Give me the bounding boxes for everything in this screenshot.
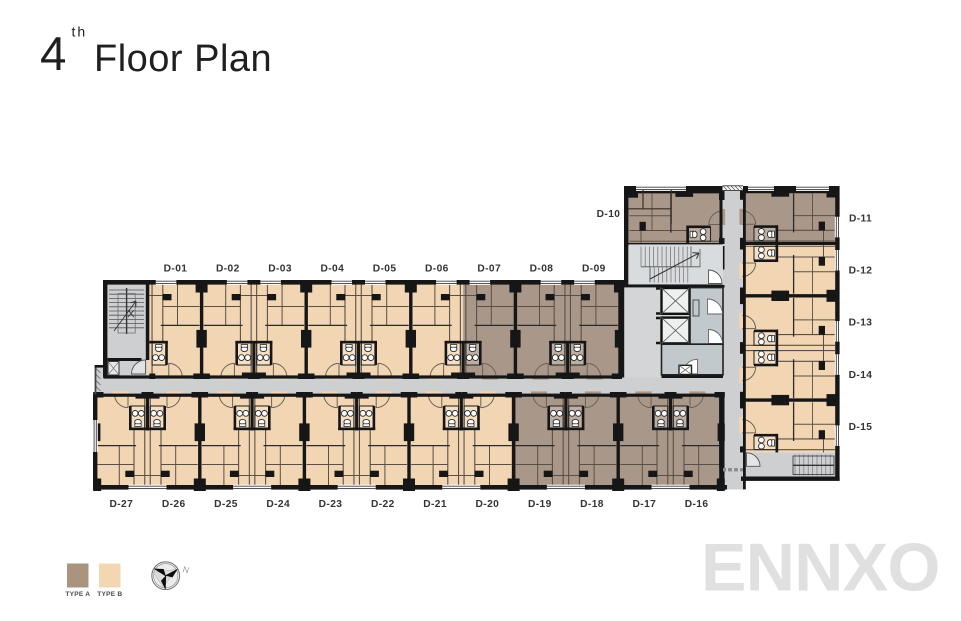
svg-text:D-10: D-10 [597,209,621,220]
svg-text:D-12: D-12 [849,266,873,277]
svg-text:Floor Plan: Floor Plan [94,38,272,80]
svg-text:TYPE B: TYPE B [97,591,122,598]
svg-text:TYPE A: TYPE A [65,591,90,598]
svg-text:4: 4 [40,28,66,81]
svg-text:D-08: D-08 [530,264,554,275]
svg-text:D-21: D-21 [423,499,447,510]
svg-text:D-03: D-03 [268,264,292,275]
svg-text:D-04: D-04 [320,264,344,275]
svg-text:ENNXO: ENNXO [701,530,940,606]
svg-text:D-01: D-01 [164,264,188,275]
svg-text:D-20: D-20 [476,499,500,510]
svg-text:D-22: D-22 [371,499,395,510]
svg-text:D-24: D-24 [266,499,290,510]
svg-text:D-11: D-11 [849,214,872,225]
svg-text:D-26: D-26 [162,499,186,510]
svg-text:D-13: D-13 [849,318,873,329]
svg-text:D-09: D-09 [582,264,606,275]
svg-text:D-19: D-19 [528,499,552,510]
svg-text:D-18: D-18 [580,499,604,510]
svg-text:th: th [72,24,88,40]
svg-text:D-25: D-25 [214,499,238,510]
svg-text:N: N [182,564,190,575]
svg-text:D-17: D-17 [633,499,657,510]
svg-text:D-15: D-15 [849,422,873,433]
svg-text:D-23: D-23 [319,499,343,510]
svg-text:D-05: D-05 [373,264,397,275]
svg-text:D-02: D-02 [216,264,240,275]
svg-text:D-14: D-14 [849,370,873,381]
svg-text:D-07: D-07 [477,264,501,275]
svg-text:D-06: D-06 [425,264,449,275]
svg-text:D-16: D-16 [685,499,709,510]
svg-text:D-27: D-27 [109,499,133,510]
